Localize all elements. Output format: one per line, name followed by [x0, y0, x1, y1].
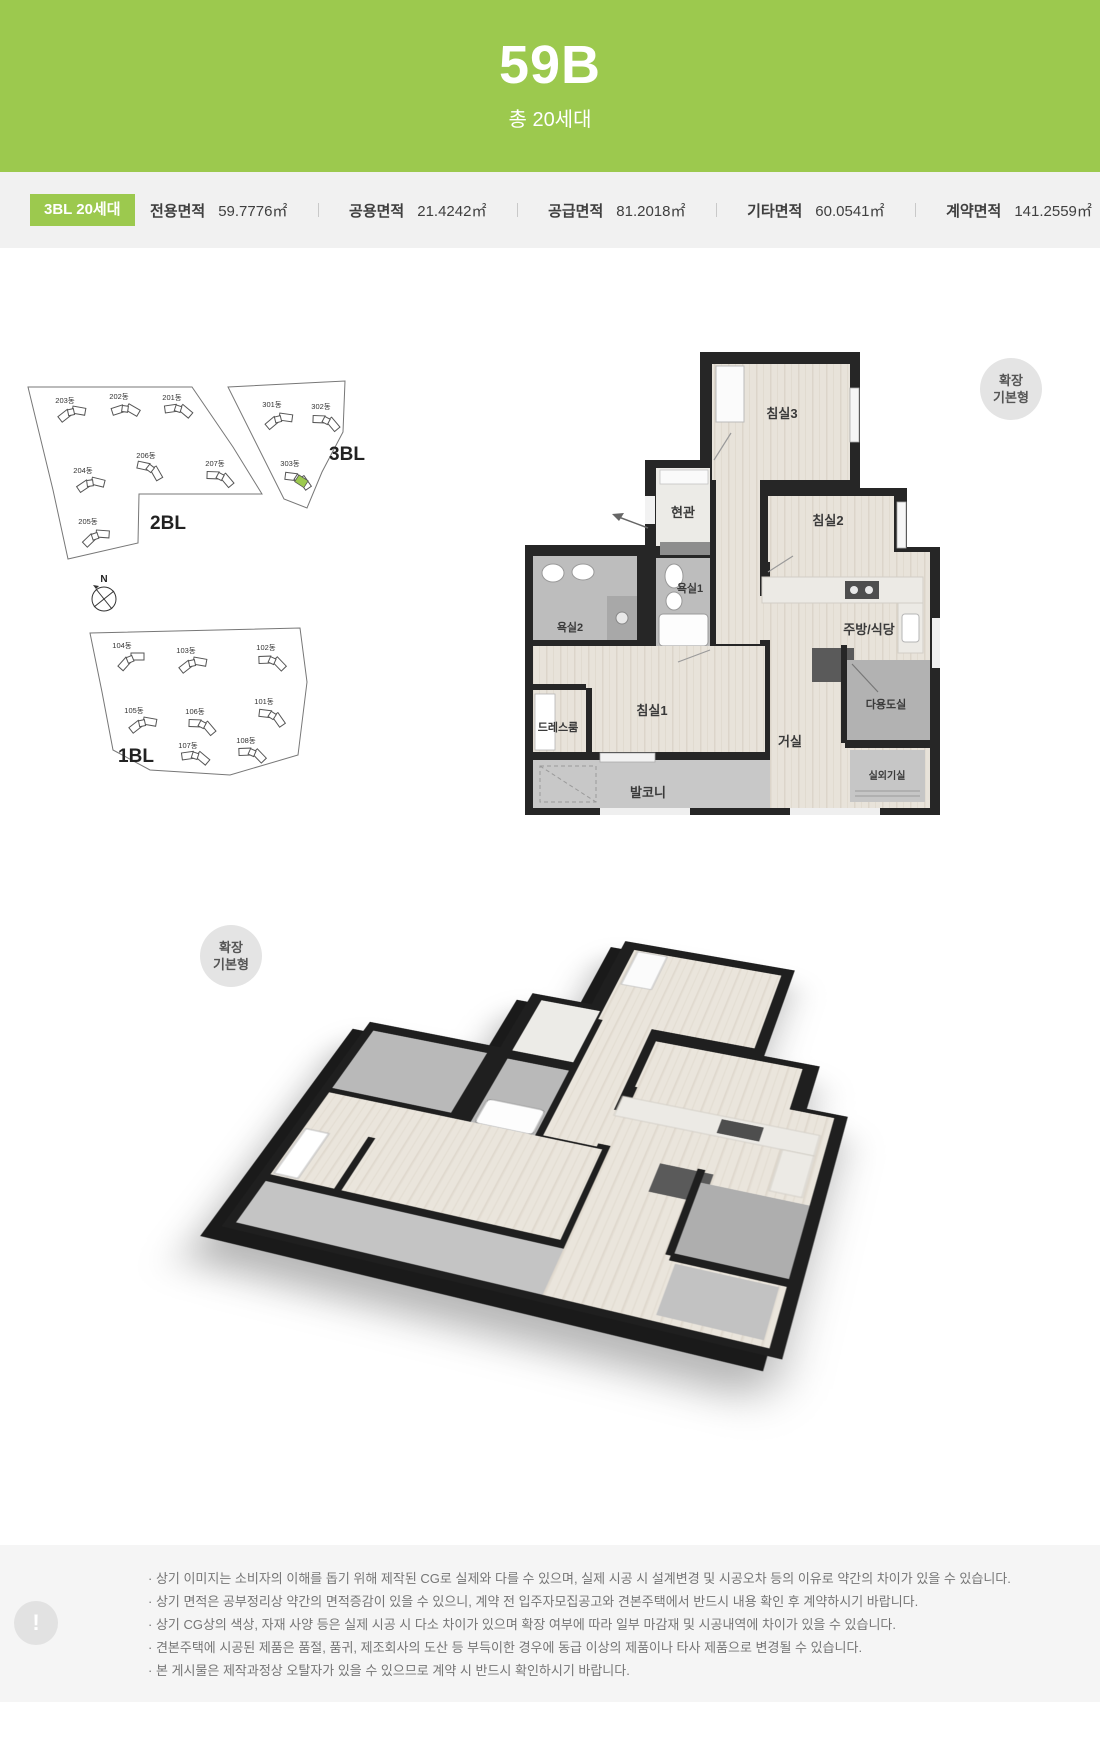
site-plan-diagram: 203동 202동 201동 204동 206동 207동 205동 301동 …	[10, 340, 370, 785]
bath1-cabinet	[660, 542, 710, 555]
dressroom-wall-right	[586, 688, 592, 752]
room-label-kitchen: 주방/식당	[843, 622, 894, 637]
bath1-bathtub	[659, 614, 708, 646]
building-103	[177, 655, 208, 674]
room-label-living: 거실	[778, 734, 802, 749]
room-label-balcony: 발코니	[630, 785, 666, 800]
header-banner: 59B 총 20세대	[0, 0, 1100, 172]
room-label-bedroom3: 침실3	[766, 406, 797, 421]
building-label-205: 205동	[78, 517, 98, 526]
block-label-3bl: 3BL	[329, 444, 365, 465]
disclaimer-line: · 상기 이미지는 소비자의 이해를 돕기 위해 제작된 CG로 실제와 다를 …	[148, 1567, 1011, 1590]
area-value: 59.7776㎡	[218, 200, 287, 221]
shower-drain	[616, 612, 628, 624]
disclaimer-line: · 견본주택에 시공된 제품은 품절, 품귀, 제조회사의 도산 등 부득이한 …	[148, 1636, 1011, 1659]
building-202	[110, 401, 141, 418]
building-301	[263, 410, 294, 430]
building-label-104: 104동	[112, 641, 132, 650]
kitchen-sink	[902, 614, 919, 642]
area-label: 공급면적	[548, 200, 603, 221]
page-subtitle: 총 20세대	[0, 103, 1100, 132]
building-label-105: 105동	[124, 706, 144, 715]
expand-basic-badge-2d: 확장 기본형	[980, 358, 1042, 420]
area-info-bar: 3BL 20세대 전용면적 59.7776㎡ 공용면적 21.4242㎡ 공급면…	[0, 172, 1100, 248]
page-title: 59B	[0, 34, 1100, 96]
building-label-102: 102동	[256, 643, 276, 652]
area-info-items: 전용면적 59.7776㎡ 공용면적 21.4242㎡ 공급면적 81.2018…	[150, 194, 1092, 226]
building-label-108: 108동	[236, 736, 256, 745]
area-label: 계약면적	[946, 200, 1001, 221]
dressroom-wall-top	[533, 684, 586, 690]
building-label-302: 302동	[311, 402, 331, 411]
balcony-window	[600, 808, 690, 815]
badge-line: 확장	[999, 372, 1023, 389]
building-label-204: 204동	[73, 466, 93, 475]
hallway-floor	[716, 480, 760, 644]
building-label-106: 106동	[185, 707, 205, 716]
stove-burner	[865, 586, 873, 594]
room-label-bedroom2: 침실2	[812, 513, 843, 528]
bath2-toilet	[542, 564, 564, 582]
kitchen-counter	[762, 577, 923, 603]
site-block-3bl-boundary	[228, 381, 345, 508]
room-label-dressroom: 드레스룸	[538, 720, 578, 734]
divider	[318, 203, 319, 217]
block-units-badge: 3BL 20세대	[30, 194, 135, 226]
block-label-2bl: 2BL	[150, 513, 186, 534]
area-label: 기타면적	[747, 200, 802, 221]
building-label-101: 101동	[254, 697, 274, 706]
living-side-window	[932, 618, 940, 668]
floor-plan-3d	[275, 835, 835, 1335]
building-label-107: 107동	[178, 741, 198, 750]
area-item-other: 기타면적 60.0541㎡	[747, 200, 884, 221]
disclaimer-lines: · 상기 이미지는 소비자의 이해를 돕기 위해 제작된 CG로 실제와 다를 …	[148, 1567, 1011, 1682]
area-label: 공용면적	[349, 200, 404, 221]
building-label-202: 202동	[109, 392, 129, 401]
building-label-206: 206동	[136, 451, 156, 460]
compass-north-label: N	[100, 574, 107, 585]
entrance-arrow	[612, 513, 648, 528]
building-label-103: 103동	[176, 646, 196, 655]
room-label-utility: 다용도실	[866, 697, 906, 711]
room-bedroom1-floor	[533, 646, 765, 752]
badge-line: 확장	[219, 939, 243, 956]
disclaimer-line: · 상기 CG상의 색상, 자재 사양 등은 실제 시공 시 다소 차이가 있으…	[148, 1613, 1011, 1636]
disclaimer-line: · 상기 면적은 공부정리상 약간의 면적증감이 있을 수 있으니, 계약 전 …	[148, 1590, 1011, 1613]
room-label-bath2: 욕실2	[557, 620, 583, 634]
unit-type-page: 59B 총 20세대 3BL 20세대 전용면적 59.7776㎡ 공용면적 2…	[0, 0, 1100, 1745]
divider	[517, 203, 518, 217]
block-label-1bl: 1BL	[118, 746, 154, 767]
area-value: 60.0541㎡	[815, 200, 884, 221]
stove-burner	[850, 586, 858, 594]
building-204	[76, 476, 107, 493]
disclaimer-section: ! · 상기 이미지는 소비자의 이해를 돕기 위해 제작된 CG로 실제와 다…	[0, 1545, 1100, 1702]
divider	[915, 203, 916, 217]
bedroom3-window	[850, 388, 859, 442]
badge-line: 기본형	[213, 956, 249, 973]
area-value: 21.4242㎡	[417, 200, 486, 221]
building-101	[256, 703, 288, 730]
room-label-acroom: 실외기실	[869, 769, 906, 782]
building-label-303: 303동	[280, 459, 300, 468]
building-203	[56, 404, 87, 423]
building-205	[80, 526, 112, 548]
area-item-supply: 공급면적 81.2018㎡	[548, 200, 685, 221]
room-label-bath1: 욕실1	[677, 581, 703, 595]
building-102	[256, 650, 288, 674]
building-label-207: 207동	[205, 459, 225, 468]
area-item-contract: 계약면적 141.2559㎡	[946, 200, 1092, 221]
area-item-exclusive: 전용면적 59.7776㎡	[150, 200, 287, 221]
building-105	[127, 715, 158, 734]
divider	[716, 203, 717, 217]
area-value: 141.2559㎡	[1014, 200, 1092, 221]
bedroom2-window	[897, 502, 906, 548]
expand-basic-badge-3d: 확장 기본형	[200, 925, 262, 987]
room-label-entrance: 현관	[671, 505, 695, 520]
building-201	[162, 399, 194, 421]
building-106	[186, 713, 218, 739]
building-207	[204, 465, 236, 491]
floor-plan-2d: 침실3 현관 침실2 욕실1 욕실2 주방/식당 다용도실 침실1 드레스룸 거…	[470, 330, 960, 830]
building-104	[115, 648, 147, 671]
entrance-door-opening	[645, 496, 655, 524]
area-value: 81.2018㎡	[616, 200, 685, 221]
compass-icon: N	[92, 574, 116, 611]
utility-wall	[841, 645, 847, 743]
room-balcony-floor	[533, 760, 771, 808]
building-302	[310, 409, 342, 435]
badge-line: 기본형	[993, 389, 1029, 406]
disclaimer-line: · 본 게시물은 제작과정상 오탈자가 있을 수 있으므로 계약 시 반드시 확…	[148, 1659, 1011, 1682]
building-label-301: 301동	[262, 400, 282, 409]
area-item-common: 공용면적 21.4242㎡	[349, 200, 486, 221]
acroom-wall	[845, 740, 930, 748]
building-108	[236, 742, 268, 766]
living-window	[790, 808, 880, 815]
bedroom3-closet	[716, 366, 744, 422]
building-label-201: 201동	[162, 393, 182, 402]
area-label: 전용면적	[150, 200, 205, 221]
warning-icon: !	[14, 1601, 58, 1645]
bath2-sink	[572, 564, 594, 580]
balcony-window-sill	[600, 753, 655, 762]
building-label-203: 203동	[55, 396, 75, 405]
room-label-bedroom1: 침실1	[636, 703, 667, 718]
entrance-shoe-closet	[660, 470, 708, 484]
